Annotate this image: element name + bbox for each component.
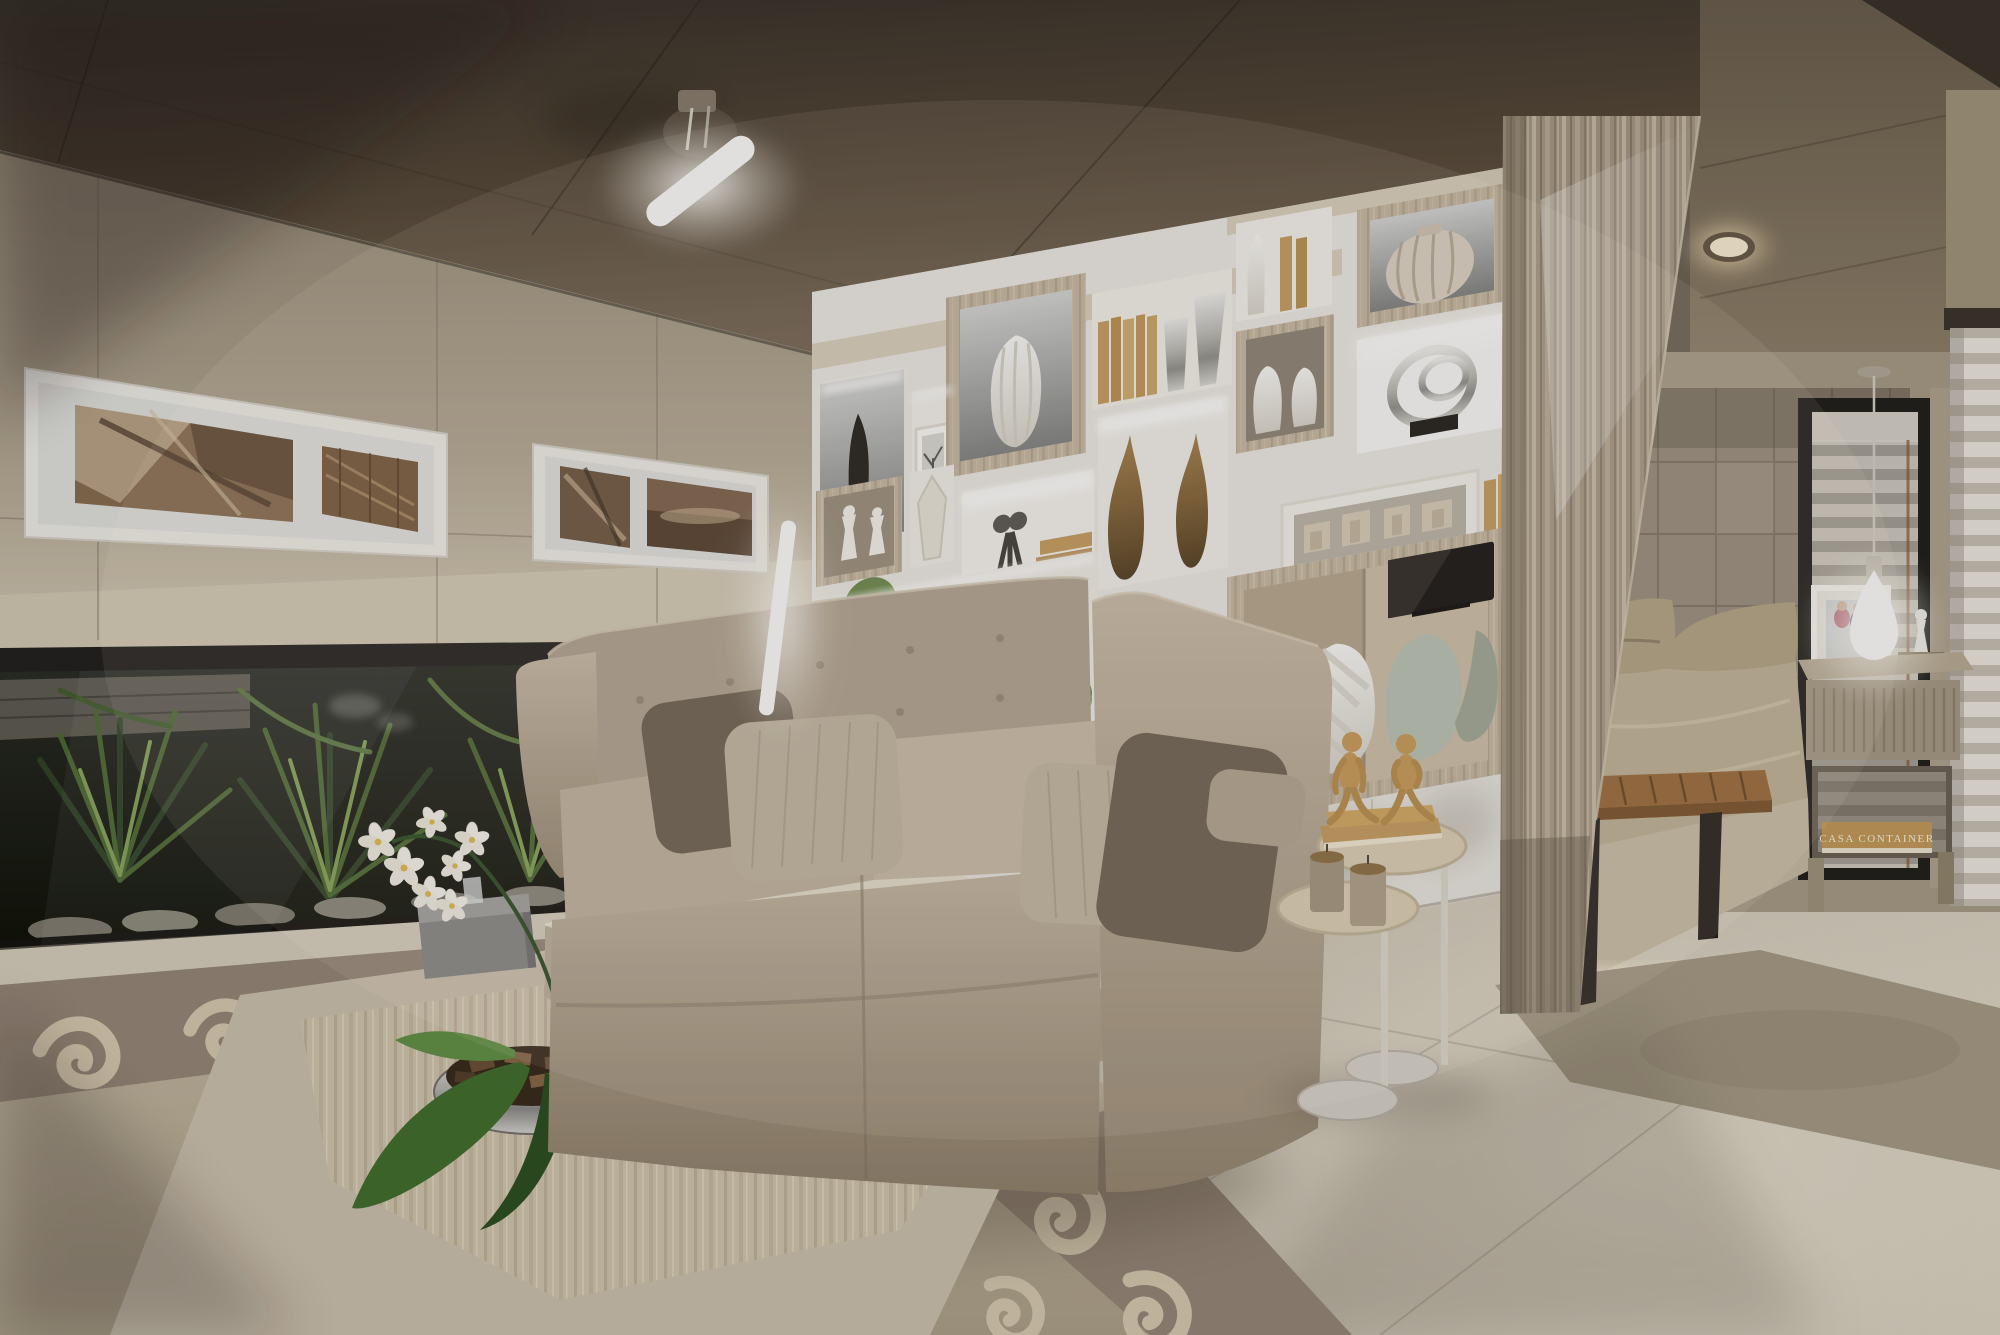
oval-wood-top-short xyxy=(1278,882,1418,934)
shelf-cell-faceted-vase xyxy=(910,464,954,568)
recessed-downlight xyxy=(1679,215,1779,279)
interior-photo: CASA CONTAINER xyxy=(0,0,2000,1335)
blind-top-rail xyxy=(1944,308,2000,330)
sofa-base xyxy=(548,866,1102,1195)
book-row xyxy=(1098,310,1157,405)
shelf-cell-white-bottle-books xyxy=(1236,206,1332,321)
gold-book: CASA CONTAINER xyxy=(1819,822,1934,853)
wood-cubby-ribbed-vases xyxy=(1236,314,1334,454)
right-blind-wall xyxy=(1944,90,2000,906)
wood-cube-carved-vase xyxy=(946,273,1086,478)
wood-cubby-chess xyxy=(816,476,902,587)
silver-cup xyxy=(1164,316,1188,392)
roller-blind-box xyxy=(1812,412,1918,442)
pillow-small xyxy=(1204,767,1307,849)
sofa xyxy=(516,578,1332,1196)
book-title: CASA CONTAINER xyxy=(1819,833,1934,845)
scene-canvas: CASA CONTAINER xyxy=(0,0,2000,1335)
floor-lamp xyxy=(736,493,828,743)
